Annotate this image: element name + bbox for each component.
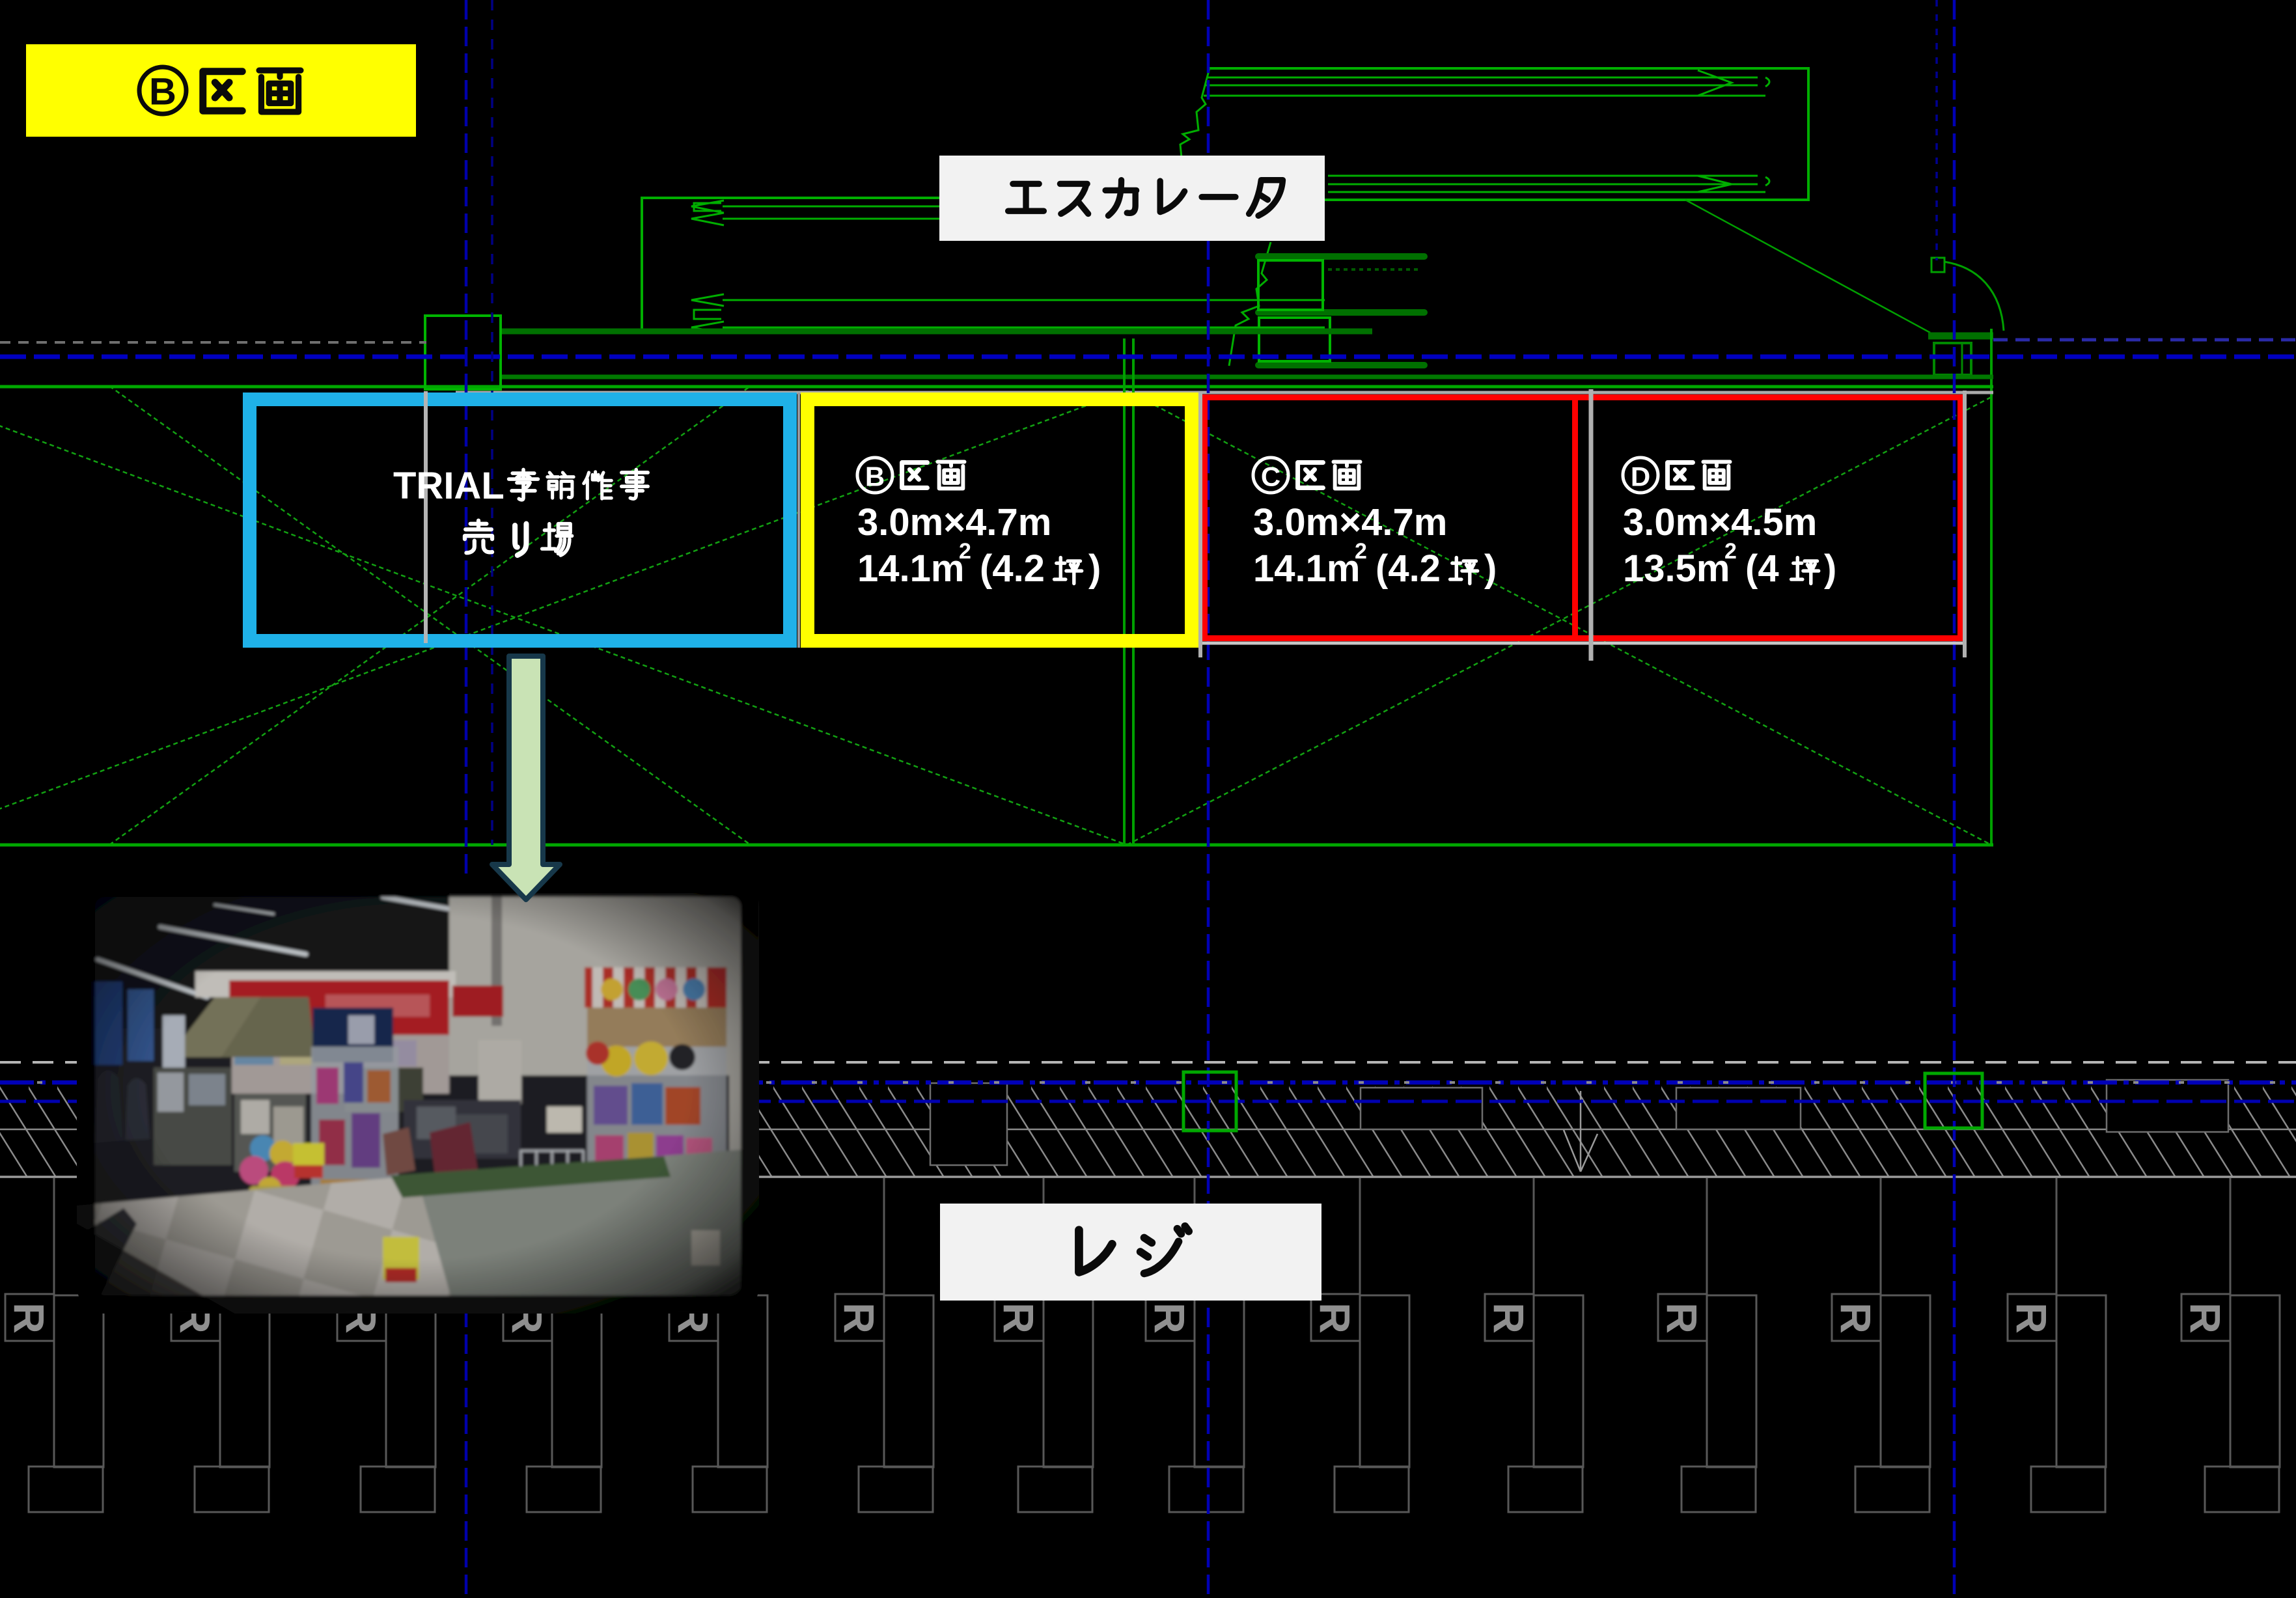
svg-text:R: R [995,1302,1043,1334]
svg-text:R: R [1658,1302,1706,1334]
svg-text:R: R [2181,1302,2230,1334]
svg-text:TRIAL: TRIAL [393,465,505,507]
svg-text:14.1m: 14.1m [1253,547,1360,590]
svg-text:(4.2: (4.2 [1376,547,1441,590]
svg-text:R: R [835,1302,883,1334]
svg-text:): ) [1484,547,1497,590]
svg-text:C: C [1261,461,1280,492]
svg-text:2: 2 [959,539,971,564]
svg-text:R: R [1146,1302,1194,1334]
svg-text:R: R [1485,1302,1533,1334]
svg-text:13.5m: 13.5m [1623,547,1730,590]
svg-text:(4: (4 [1745,547,1779,590]
svg-text:3.0m×4.5m: 3.0m×4.5m [1623,501,1817,544]
svg-text:B: B [865,461,885,492]
svg-text:3.0m×4.7m: 3.0m×4.7m [857,501,1051,544]
svg-text:D: D [1631,461,1650,492]
svg-text:): ) [1088,547,1101,590]
svg-text:R: R [5,1302,53,1334]
svg-text:R: R [1832,1302,1880,1334]
svg-text:(4.2: (4.2 [980,547,1045,590]
svg-text:3.0m×4.7m: 3.0m×4.7m [1253,501,1447,544]
svg-text:): ) [1824,547,1836,590]
svg-text:2: 2 [1724,539,1737,564]
svg-text:2: 2 [1355,539,1367,564]
svg-text:R: R [1311,1302,1359,1334]
svg-text:14.1m: 14.1m [857,547,964,590]
svg-text:R: R [2008,1302,2056,1334]
svg-text:B: B [149,71,176,113]
